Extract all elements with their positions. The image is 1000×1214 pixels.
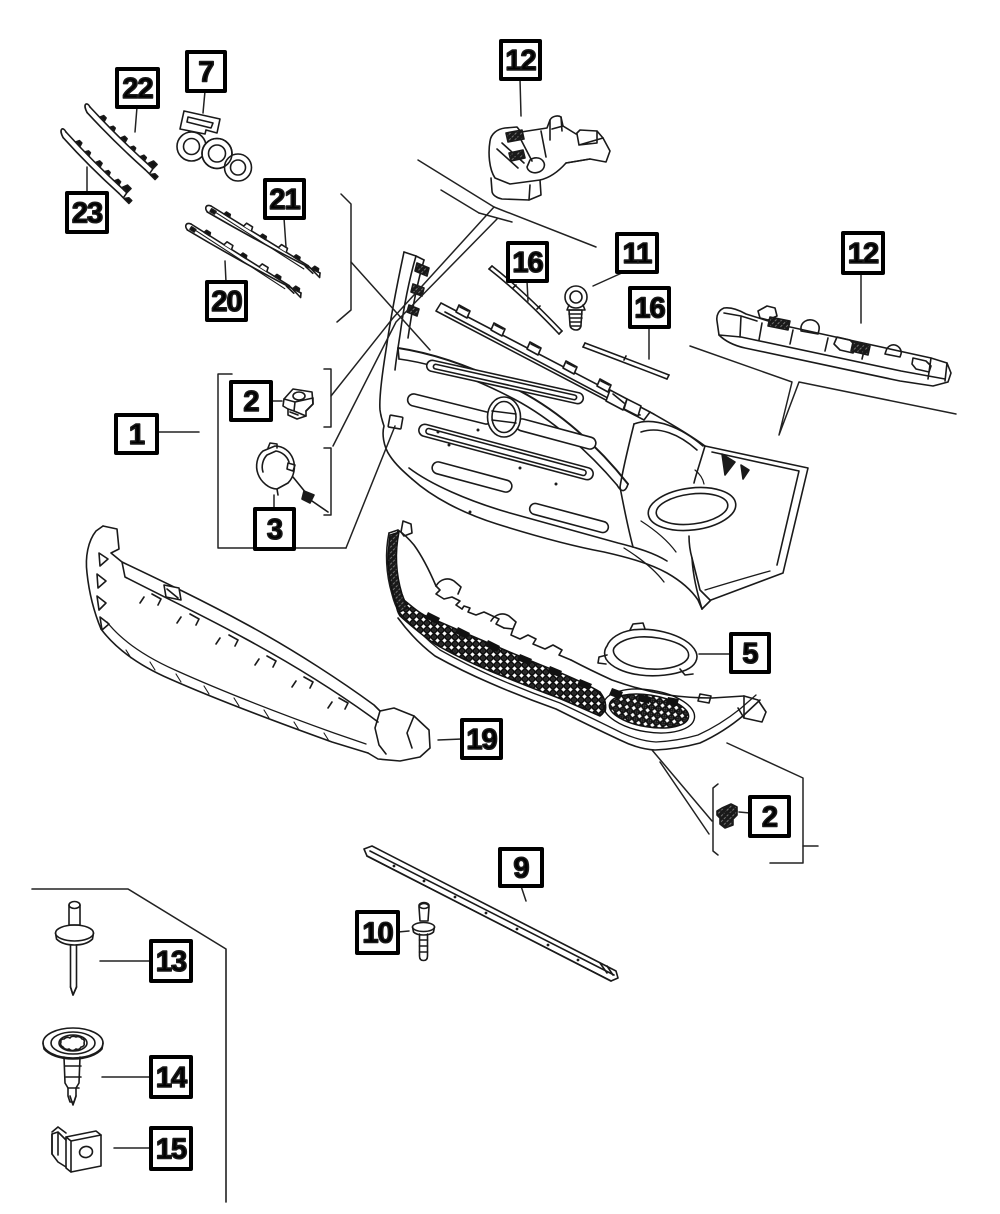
- svg-text:1: 1: [129, 419, 145, 451]
- svg-text:11: 11: [623, 238, 653, 270]
- svg-text:12: 12: [505, 45, 535, 77]
- svg-text:3: 3: [267, 514, 283, 546]
- svg-text:10: 10: [362, 918, 392, 950]
- svg-text:2: 2: [243, 386, 258, 418]
- svg-text:12: 12: [848, 238, 878, 270]
- svg-text:13: 13: [156, 946, 187, 978]
- svg-text:20: 20: [211, 286, 241, 318]
- svg-text:22: 22: [122, 73, 152, 105]
- svg-text:23: 23: [72, 198, 103, 230]
- svg-text:16: 16: [512, 247, 543, 279]
- svg-text:19: 19: [466, 724, 497, 756]
- svg-text:9: 9: [513, 853, 529, 885]
- svg-text:7: 7: [198, 57, 213, 89]
- svg-text:2: 2: [762, 802, 777, 834]
- svg-text:14: 14: [156, 1062, 187, 1094]
- svg-text:16: 16: [634, 293, 665, 325]
- svg-text:21: 21: [269, 184, 300, 216]
- svg-text:5: 5: [742, 638, 758, 670]
- svg-text:15: 15: [156, 1134, 187, 1166]
